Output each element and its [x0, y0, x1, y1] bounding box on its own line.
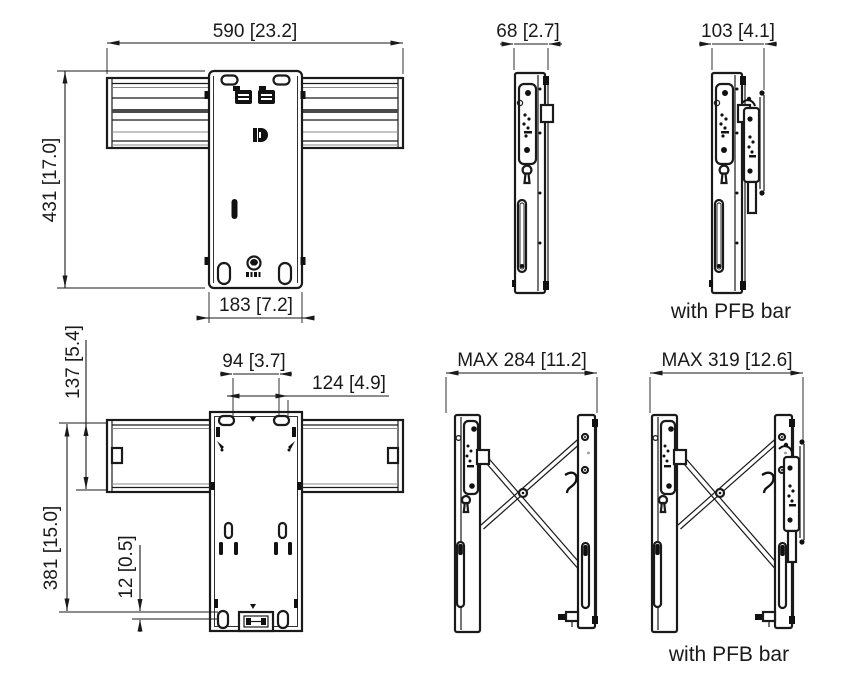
keyhole-tab-right: [274, 416, 289, 425]
dim-front-plate-width: 183 [7.2]: [219, 295, 293, 316]
interface-plate-back: [210, 412, 302, 631]
rail-notch-right: [388, 448, 398, 463]
caption-with-pfb-bar-bottom: with PFB bar: [668, 643, 789, 666]
dim-back-rail-height: 137 [5.4]: [63, 325, 84, 399]
dim-side-pfb-depth: 103 [4.1]: [701, 21, 775, 42]
dim-back-hole-span-outer: 124 [4.9]: [312, 373, 386, 394]
top-slot-right: [274, 76, 290, 85]
technical-drawing-page: 590 [23.2] 431 [17.0] 183 [7.2] 68 [2.7]: [0, 0, 850, 684]
dim-side-depth: 68 [2.7]: [496, 21, 559, 42]
back-view: 137 [5.4] 381 [15.0] 94 [3.7] 124 [4.9] …: [41, 325, 403, 632]
dim-back-hole-span-inner: 94 [3.7]: [222, 351, 285, 372]
clip-left-icon: [235, 90, 252, 104]
dim-front-height: 431 [17.0]: [40, 138, 61, 223]
keyhole-tab-left: [219, 416, 234, 425]
dim-extended-max-depth: MAX 284 [11.2]: [457, 350, 587, 371]
dim-extended-pfb-max-depth: MAX 319 [12.6]: [662, 350, 793, 371]
rail-notch-left: [112, 448, 122, 463]
bottom-slot-left: [218, 263, 230, 284]
interface-plate: [209, 71, 302, 288]
dim-back-height: 381 [15.0]: [41, 506, 62, 591]
dim-back-bottom-offset: 12 [0.5]: [116, 535, 137, 598]
extended-side-view: MAX 284 [11.2]: [446, 350, 598, 632]
top-slot-left: [222, 76, 238, 85]
side-view: 68 [2.7]: [496, 21, 562, 293]
bottom-hole-left: [218, 611, 228, 628]
dim-front-width: 590 [23.2]: [213, 21, 298, 42]
side-view-with-pfb-bar: 103 [4.1] with PFB bar: [670, 21, 791, 323]
caption-with-pfb-bar-top: with PFB bar: [670, 300, 791, 323]
extended-side-view-with-pfb-bar: MAX 319 [12.6] with PFB bar: [650, 350, 805, 666]
center-slot: [232, 199, 238, 219]
clip-right-icon: [258, 90, 275, 104]
bottom-slot-right: [279, 263, 291, 284]
drawing-canvas: 590 [23.2] 431 [17.0] 183 [7.2] 68 [2.7]: [0, 0, 850, 684]
front-view: 590 [23.2] 431 [17.0] 183 [7.2]: [40, 21, 403, 323]
bottom-hole-right: [278, 611, 288, 628]
